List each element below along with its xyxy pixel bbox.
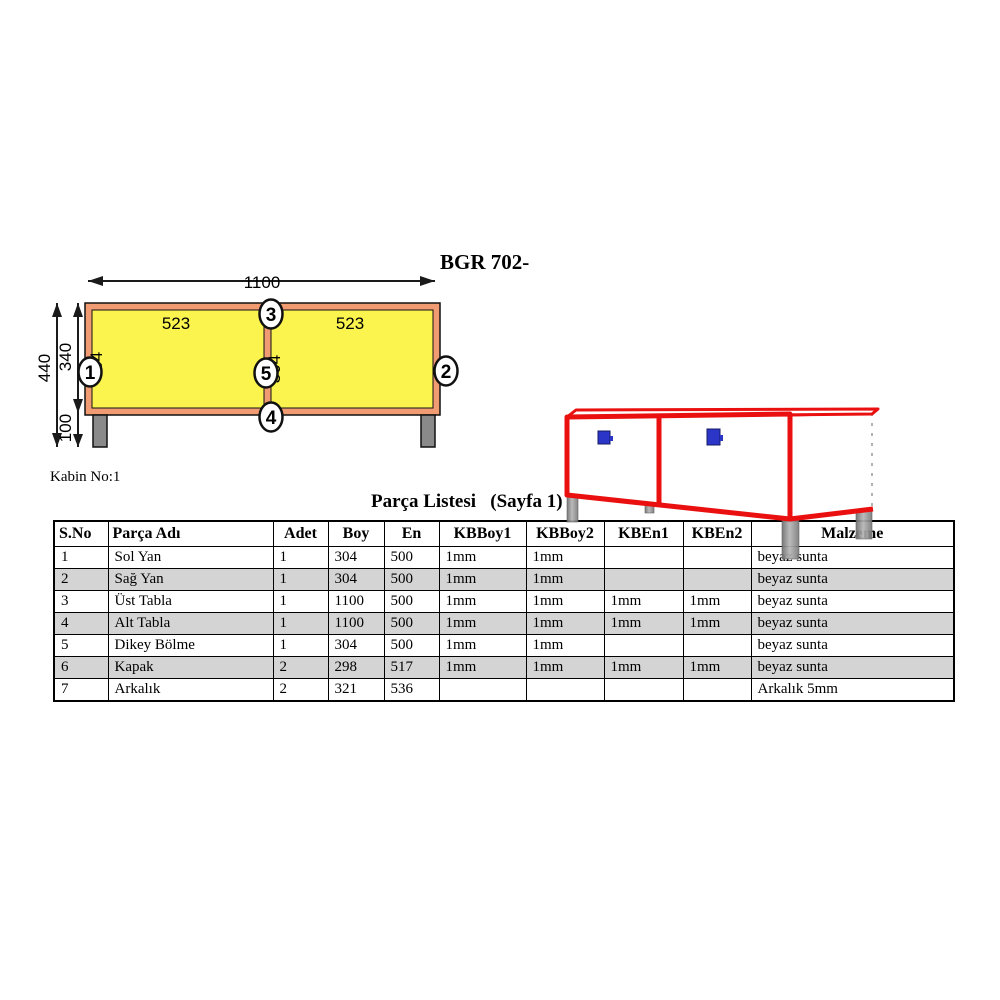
- table-cell: [604, 569, 683, 591]
- table-cell: [526, 679, 604, 702]
- table-header-row: S.NoParça AdıAdetBoyEnKBBoy1KBBoy2KBEn1K…: [54, 521, 954, 547]
- column-header-2: Adet: [273, 521, 328, 547]
- column-header-8: KBEn2: [683, 521, 751, 547]
- table-cell: 304: [328, 635, 384, 657]
- column-header-5: KBBoy1: [439, 521, 526, 547]
- dim-label-440: 440: [35, 354, 54, 382]
- callout-4-number: 4: [266, 408, 277, 429]
- dimension-height-total: 440: [35, 303, 62, 447]
- iso-side-face: [790, 413, 872, 519]
- table-cell: Dikey Bölme: [108, 635, 273, 657]
- table-cell: 1mm: [439, 635, 526, 657]
- table-cell: beyaz sunta: [751, 591, 954, 613]
- table-cell: 1mm: [439, 613, 526, 635]
- table-cell: Sağ Yan: [108, 569, 273, 591]
- callout-2: 2: [435, 357, 458, 386]
- callout-4: 4: [260, 403, 283, 432]
- table-cell: 4: [54, 613, 108, 635]
- iso-leg-back-middle: [645, 503, 654, 513]
- column-header-6: KBBoy2: [526, 521, 604, 547]
- cabinet-panel-left: [92, 310, 264, 408]
- door-handle-right-icon: [707, 429, 723, 445]
- column-header-1: Parça Adı: [108, 521, 273, 547]
- table-cell: 1100: [328, 613, 384, 635]
- table-cell: [683, 679, 751, 702]
- table-cell: [683, 635, 751, 657]
- table-row: 1Sol Yan13045001mm1mmbeyaz sunta: [54, 547, 954, 569]
- table-cell: 1: [273, 613, 328, 635]
- dimension-height-leg: 100: [56, 413, 83, 447]
- table-cell: beyaz sunta: [751, 657, 954, 679]
- table-cell: 1: [273, 547, 328, 569]
- callout-1-number: 1: [85, 363, 96, 384]
- dim-label-340: 340: [56, 343, 75, 371]
- callout-3-number: 3: [266, 305, 277, 326]
- table-cell: Sol Yan: [108, 547, 273, 569]
- table-cell: 1mm: [526, 657, 604, 679]
- table-row: 7Arkalık2321536Arkalık 5mm: [54, 679, 954, 702]
- table-cell: 517: [384, 657, 439, 679]
- iso-leg-front-left: [567, 494, 578, 522]
- table-cell: 1mm: [683, 657, 751, 679]
- table-cell: [683, 569, 751, 591]
- table-cell: 500: [384, 635, 439, 657]
- dimension-width-total: 1100: [88, 273, 435, 292]
- dim-label-panel-height-right: 304: [265, 355, 284, 383]
- callout-3: 3: [260, 300, 283, 329]
- table-cell: 1mm: [604, 657, 683, 679]
- table-cell: 500: [384, 569, 439, 591]
- iso-front-face: [567, 414, 790, 519]
- table-cell: 2: [273, 657, 328, 679]
- table-cell: 1100: [328, 591, 384, 613]
- table-cell: 1: [273, 569, 328, 591]
- front-view-leg-right: [421, 415, 435, 447]
- front-view: 1100 440 340 100 523 5: [35, 273, 458, 447]
- table-cell: 7: [54, 679, 108, 702]
- table-cell: 2: [54, 569, 108, 591]
- table-cell: 321: [328, 679, 384, 702]
- table-cell: Alt Tabla: [108, 613, 273, 635]
- table-cell: 1mm: [526, 591, 604, 613]
- table-cell: 1mm: [526, 547, 604, 569]
- table-header-row: S.NoParça AdıAdetBoyEnKBBoy1KBBoy2KBEn1K…: [54, 521, 954, 547]
- table-cell: 1mm: [683, 613, 751, 635]
- drawing-title: BGR 702-: [440, 250, 529, 275]
- table-cell: 304: [328, 547, 384, 569]
- cabinet-frame: [85, 303, 440, 415]
- dimension-height-body: 340: [56, 303, 83, 413]
- table-cell: [439, 679, 526, 702]
- table-cell: beyaz sunta: [751, 547, 954, 569]
- table-row: 3Üst Tabla111005001mm1mm1mm1mmbeyaz sunt…: [54, 591, 954, 613]
- door-handle-left-icon: [598, 431, 613, 444]
- table-cell: 1mm: [526, 635, 604, 657]
- table-cell: 500: [384, 591, 439, 613]
- iso-side-bottom-edge: [790, 509, 873, 519]
- column-header-3: Boy: [328, 521, 384, 547]
- table-cell: 298: [328, 657, 384, 679]
- table-cell: [683, 547, 751, 569]
- table-cell: 1mm: [439, 657, 526, 679]
- table-cell: Arkalık: [108, 679, 273, 702]
- table-cell: 500: [384, 613, 439, 635]
- dim-label-panel-height-left: 304: [87, 352, 106, 380]
- table-cell: beyaz sunta: [751, 613, 954, 635]
- table-cell: Kapak: [108, 657, 273, 679]
- table-cell: [604, 679, 683, 702]
- table-body: 1Sol Yan13045001mm1mmbeyaz sunta2Sağ Yan…: [54, 547, 954, 702]
- table-cell: 1mm: [526, 569, 604, 591]
- dim-label-panel-width-left: 523: [162, 314, 190, 333]
- table-cell: beyaz sunta: [751, 569, 954, 591]
- table-cell: 536: [384, 679, 439, 702]
- column-header-9: Malzeme: [751, 521, 954, 547]
- table-row: 4Alt Tabla111005001mm1mm1mm1mmbeyaz sunt…: [54, 613, 954, 635]
- iso-top-face: [567, 409, 878, 417]
- table-cell: 1mm: [439, 591, 526, 613]
- callout-5-number: 5: [261, 364, 272, 385]
- table-cell: 500: [384, 547, 439, 569]
- callout-5: 5: [255, 359, 278, 388]
- dim-label-100: 100: [56, 414, 75, 442]
- table-cell: Üst Tabla: [108, 591, 273, 613]
- table-row: 2Sağ Yan13045001mm1mmbeyaz sunta: [54, 569, 954, 591]
- column-header-4: En: [384, 521, 439, 547]
- table-row: 5Dikey Bölme13045001mm1mmbeyaz sunta: [54, 635, 954, 657]
- table-cell: beyaz sunta: [751, 635, 954, 657]
- parts-list-table: S.NoParça AdıAdetBoyEnKBBoy1KBBoy2KBEn1K…: [53, 520, 955, 702]
- front-view-leg-left: [93, 415, 107, 447]
- table-cell: 1mm: [526, 613, 604, 635]
- dim-label-1100: 1100: [244, 273, 281, 292]
- cabin-number-label: Kabin No:1: [50, 469, 120, 486]
- column-header-7: KBEn1: [604, 521, 683, 547]
- table-row: 6Kapak22985171mm1mm1mm1mmbeyaz sunta: [54, 657, 954, 679]
- iso-side-top-edge: [790, 412, 874, 414]
- callout-1: 1: [79, 358, 102, 387]
- table-cell: 1mm: [604, 591, 683, 613]
- table-cell: 1mm: [683, 591, 751, 613]
- dim-label-panel-width-right: 523: [336, 314, 364, 333]
- table-cell: [604, 547, 683, 569]
- table-cell: 1mm: [604, 613, 683, 635]
- table-cell: 1: [273, 635, 328, 657]
- table-cell: 1mm: [439, 547, 526, 569]
- table-cell: 1mm: [439, 569, 526, 591]
- table-cell: 3: [54, 591, 108, 613]
- table-cell: 6: [54, 657, 108, 679]
- column-header-0: S.No: [54, 521, 108, 547]
- table-cell: [604, 635, 683, 657]
- parts-list-title: Parça Listesi (Sayfa 1): [371, 491, 563, 513]
- table-cell: 1: [273, 591, 328, 613]
- callout-2-number: 2: [441, 362, 452, 383]
- table-cell: 304: [328, 569, 384, 591]
- cabinet-panel-right: [271, 310, 433, 408]
- table-cell: 1: [54, 547, 108, 569]
- table-cell: 2: [273, 679, 328, 702]
- table-cell: Arkalık 5mm: [751, 679, 954, 702]
- table-cell: 5: [54, 635, 108, 657]
